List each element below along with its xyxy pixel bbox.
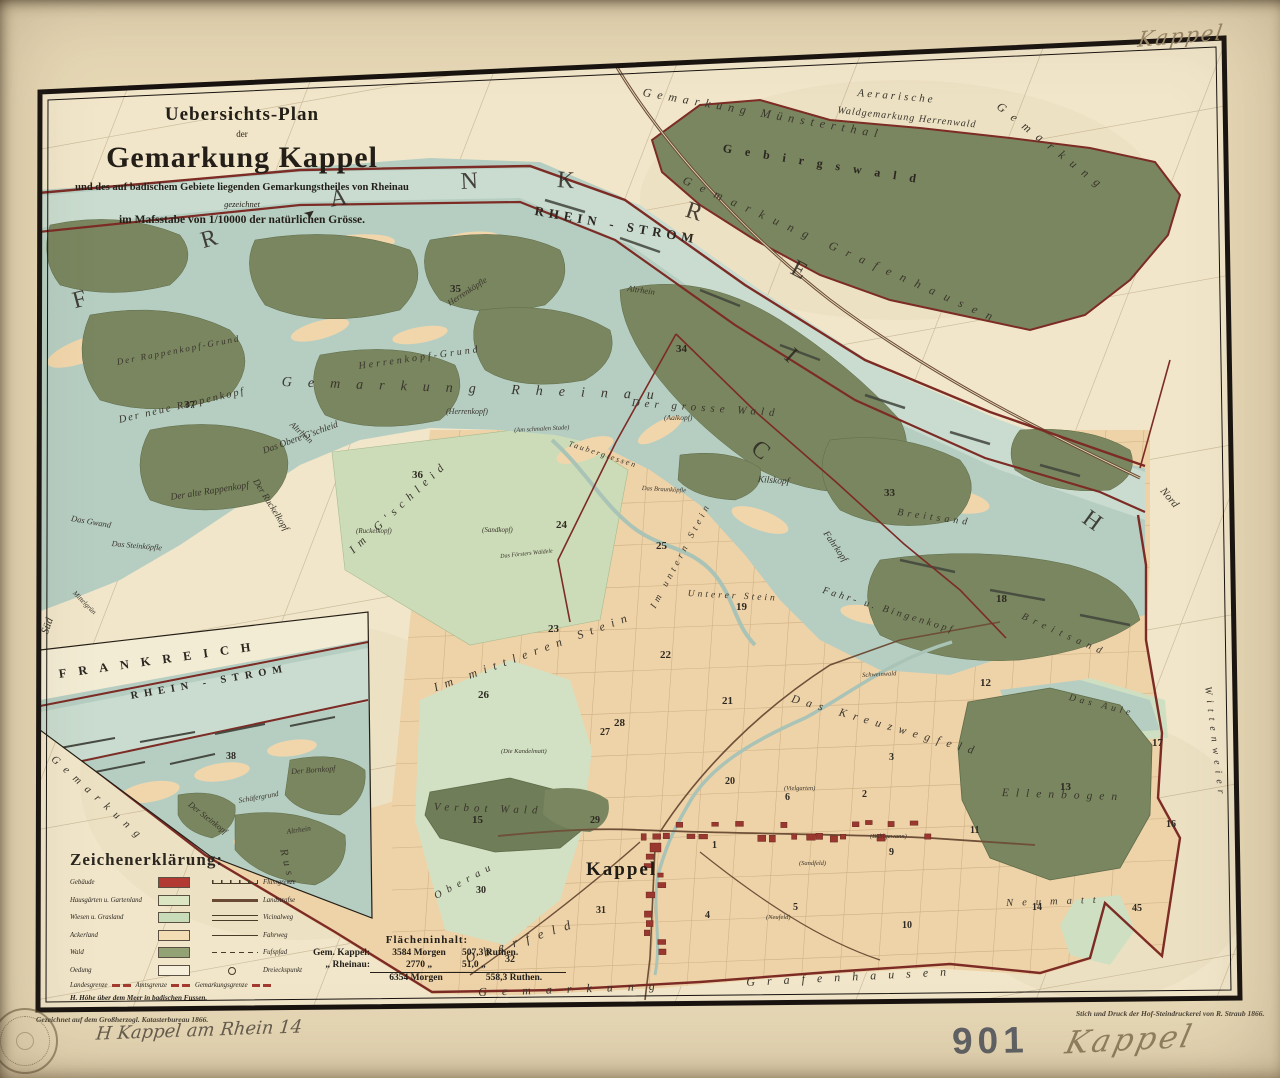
area-summary-cell: Gem. Kappel: xyxy=(288,948,376,958)
legend-title: Zeichenerklärung: xyxy=(70,850,400,870)
legend-line-label: Vicinalweg xyxy=(263,914,293,921)
area-summary-cell: 3584 Morgen xyxy=(376,948,462,958)
map-subtitle: und des auf badischem Gebiete liegenden … xyxy=(58,182,426,193)
legend-line-label: Fahrweg xyxy=(263,932,288,939)
red-boundary-segment-icon xyxy=(171,984,191,987)
legend-item-label: Hausgärten u. Gartenland xyxy=(70,897,156,904)
area-summary-title: Flächeninhalt: xyxy=(288,934,566,946)
map-photo: FRANKREICHSüdNordGemarkung MünsterthalAe… xyxy=(0,0,1280,1078)
area-summary-cell: 51,0 „ xyxy=(462,960,556,970)
legend-item-label: Wiesen u. Grasland xyxy=(70,914,156,921)
legend-line-item: Landstrafse xyxy=(212,892,302,910)
legend-color-swatch xyxy=(158,877,190,888)
legend-line-item: Vicinalweg xyxy=(212,909,302,927)
thick-symbol-icon xyxy=(212,896,258,905)
legend-item-label: Gebäude xyxy=(70,879,156,886)
ticks-symbol-icon xyxy=(212,878,258,887)
legend-color-swatch xyxy=(158,912,190,923)
legend-color-swatch xyxy=(158,930,190,941)
area-summary-total-row: 6354 Morgen558,3 Ruthen. xyxy=(370,972,566,983)
map-title-main: Gemarkung Kappel xyxy=(58,141,426,175)
legend-color-swatch xyxy=(158,895,190,906)
legend-item-label: Ackerland xyxy=(70,932,156,939)
legend-footnote: H. Höhe über dem Meer in badischen Fusse… xyxy=(70,994,400,1002)
map-title-der: der xyxy=(58,129,426,139)
legend-item: Ackerland xyxy=(70,927,190,945)
area-summary-total-cell: 6354 Morgen xyxy=(370,973,462,983)
red-boundary-segment-icon xyxy=(252,984,272,987)
area-summary-cell: 507,3 Ruthen. xyxy=(462,948,556,958)
sheet-number-stamp: 901 xyxy=(952,1019,1029,1062)
legend-item: Oedung xyxy=(70,962,190,980)
legend-swatch-list: GebäudeHausgärten u. GartenlandWiesen u.… xyxy=(70,874,190,979)
double-symbol-icon xyxy=(212,913,258,922)
legend-boundary-label: Amtsgrenze xyxy=(136,982,167,989)
area-summary-cell: 2770 „ xyxy=(376,960,462,970)
dashed-symbol-icon xyxy=(212,948,258,957)
legend-color-swatch xyxy=(158,947,190,958)
area-summary-row: Gem. Kappel:3584 Morgen507,3 Ruthen. xyxy=(288,948,566,958)
map-title: Uebersichts-Plan xyxy=(58,104,426,126)
area-summary-row: „ Rheinau:2770 „51,0 „ xyxy=(288,960,566,970)
thin-symbol-icon xyxy=(212,931,258,940)
title-block: Uebersichts-Plan der Gemarkung Kappel un… xyxy=(58,104,426,226)
red-boundary-segment-icon xyxy=(112,984,132,987)
area-summary-rows: Gem. Kappel:3584 Morgen507,3 Ruthen.„ Rh… xyxy=(288,948,566,983)
point-symbol-icon xyxy=(212,966,258,975)
legend-item-label: Oedung xyxy=(70,967,156,974)
handwritten-title-bottom: Kappel xyxy=(1062,1018,1198,1061)
legend-item: Wiesen u. Grasland xyxy=(70,909,190,927)
legend-boundary-label: Landesgrenze xyxy=(70,982,108,989)
legend-line-label: Landstrafse xyxy=(263,897,295,904)
legend-item: Hausgärten u. Gartenland xyxy=(70,892,190,910)
legend-item-label: Wald xyxy=(70,949,156,956)
legend-boundary-label: Gemarkungsgrenze xyxy=(195,982,248,989)
area-summary-total-cell: 558,3 Ruthen. xyxy=(462,973,566,983)
map-title-gezeichnet: gezeichnet xyxy=(58,199,426,209)
legend-item: Wald xyxy=(70,944,190,962)
area-summary: Flächeninhalt: Gem. Kappel:3584 Morgen50… xyxy=(288,934,566,983)
legend-line-label: Fufspfad xyxy=(263,949,287,956)
credit-printed-by: Stich und Druck der Hof-Steindruckerei v… xyxy=(1076,1009,1264,1018)
area-summary-cell: „ Rheinau: xyxy=(288,960,376,970)
map-scale-note: im Mafsstabe von 1/10000 der natürlichen… xyxy=(58,214,426,226)
legend-color-swatch xyxy=(158,965,190,976)
forest-ellenbogen xyxy=(958,688,1152,880)
legend-item: Gebäude xyxy=(70,874,190,892)
legend-line-item: Flussgrenze xyxy=(212,874,302,892)
legend-boundary-row: LandesgrenzeAmtsgrenzeGemarkungsgrenze xyxy=(70,982,400,989)
legend-line-label: Flussgrenze xyxy=(263,879,296,886)
